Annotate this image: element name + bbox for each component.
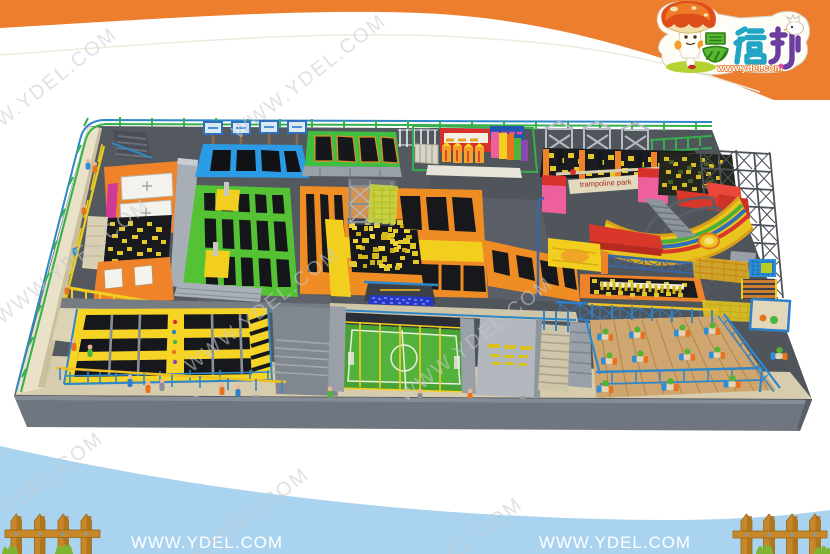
svg-text:WWW.YDEL.COM: WWW.YDEL.COM bbox=[539, 533, 691, 552]
svg-text:www.ydel.com: www.ydel.com bbox=[716, 63, 783, 74]
